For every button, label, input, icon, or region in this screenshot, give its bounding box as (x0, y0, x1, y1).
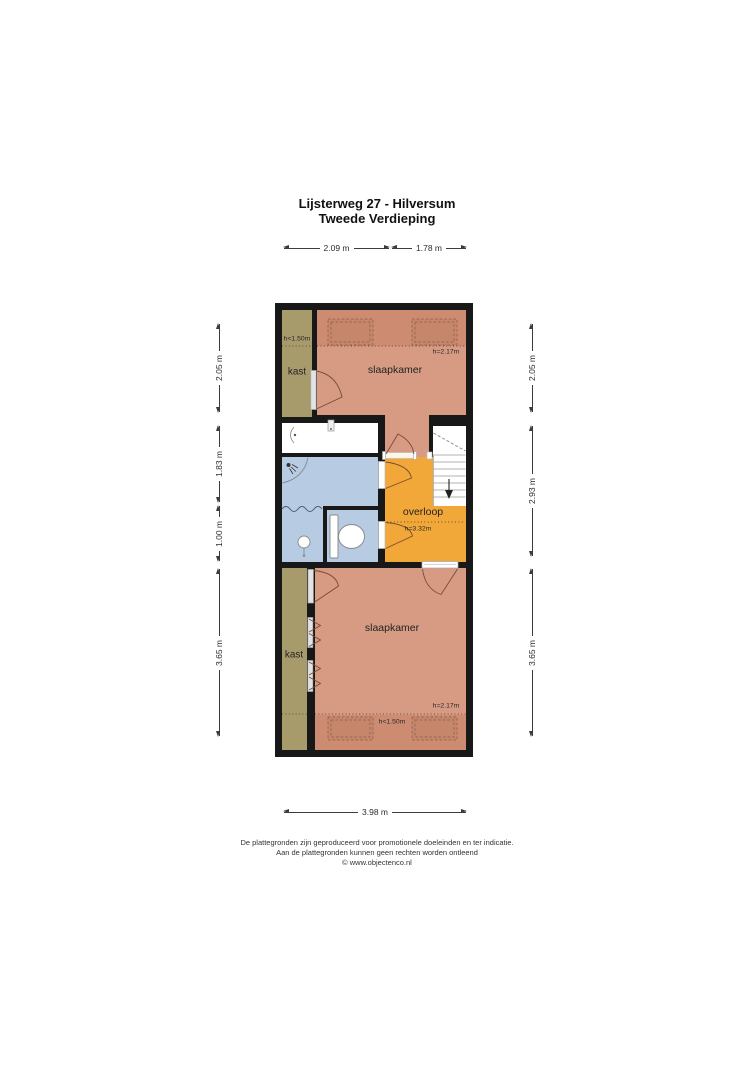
dimension-label: 2.05 m (214, 351, 224, 385)
arrow-up-icon (529, 323, 533, 329)
arrow-right-icon (384, 245, 390, 249)
room-label-slaapkamer-bottom: slaapkamer (365, 622, 419, 634)
page-title: Lijsterweg 27 - Hilversum (0, 196, 754, 211)
arrow-left-icon (283, 809, 289, 813)
height-note-slaapkamer-bottom: h=2.17m (433, 703, 460, 710)
dimension-label: 1.00 m (214, 517, 224, 551)
footer-line-1: De plattegronden zijn geproduceerd voor … (0, 838, 754, 848)
arrow-up-icon (216, 425, 220, 431)
height-note-slaapkamer-bottom-low: h<1.50m (379, 719, 406, 726)
dimension-left-4: 3.65 m (211, 568, 227, 737)
floorplan-page: Lijsterweg 27 - Hilversum Tweede Verdiep… (0, 0, 754, 1067)
arrow-up-icon (216, 568, 220, 574)
dimension-label: 2.93 m (527, 474, 537, 508)
room-bathroom-right (323, 457, 378, 506)
dimension-top-2: 1.78 m (391, 240, 467, 256)
room-label-slaapkamer-top: slaapkamer (368, 364, 422, 376)
room-storage-white (282, 423, 378, 453)
room-label-overloop: overloop (403, 506, 443, 518)
footer-disclaimer: De plattegronden zijn geproduceerd voor … (0, 838, 754, 868)
dimension-left-3: 1.00 m (211, 505, 227, 562)
floorplan: h<1.50m kast slaapkamer h=2.17m overloop… (275, 303, 473, 757)
page-subtitle: Tweede Verdieping (0, 211, 754, 226)
dimension-label: 2.09 m (320, 243, 354, 253)
arrow-down-icon (216, 497, 220, 503)
slaapkamer-top-corridor (385, 415, 429, 457)
dimension-label: 3.65 m (527, 636, 537, 670)
dimension-left-2: 1.83 m (211, 425, 227, 503)
room-label-kast-top: kast (288, 367, 306, 378)
arrow-down-icon (529, 407, 533, 413)
dimension-right-2: 2.93 m (524, 425, 540, 557)
arrow-up-icon (529, 425, 533, 431)
dimension-left-1: 2.05 m (211, 323, 227, 413)
arrow-right-icon (461, 245, 467, 249)
dimension-right-3: 3.65 m (524, 568, 540, 737)
room-toilet (327, 510, 378, 562)
dimension-label: 1.78 m (412, 243, 446, 253)
footer-line-2: Aan de plattegronden kunnen geen rechten… (0, 848, 754, 858)
arrow-down-icon (216, 407, 220, 413)
dimension-label: 3.65 m (214, 636, 224, 670)
room-label-kast-bottom: kast (285, 650, 303, 661)
dimension-label: 2.05 m (527, 351, 537, 385)
dimension-label: 3.98 m (358, 807, 392, 817)
dimension-top-1: 2.09 m (283, 240, 390, 256)
title-block: Lijsterweg 27 - Hilversum Tweede Verdiep… (0, 196, 754, 226)
arrow-right-icon (461, 809, 467, 813)
height-note-kast-top: h<1.50m (284, 336, 311, 343)
arrow-up-icon (529, 568, 533, 574)
room-kast-top (282, 310, 312, 417)
footer-line-3: © www.objectenco.nl (0, 858, 754, 868)
height-note-slaapkamer-top: h=2.17m (433, 349, 460, 356)
arrow-down-icon (529, 731, 533, 737)
slaapkamer-top-low-ceiling-band (317, 310, 466, 346)
dimension-right-1: 2.05 m (524, 323, 540, 413)
arrow-left-icon (391, 245, 397, 249)
stairs-area (433, 426, 466, 506)
arrow-left-icon (283, 245, 289, 249)
arrow-up-icon (216, 505, 220, 511)
arrow-up-icon (216, 323, 220, 329)
dimension-bottom-1: 3.98 m (283, 804, 467, 820)
arrow-down-icon (216, 731, 220, 737)
height-note-overloop: h=3.32m (405, 526, 432, 533)
arrow-down-icon (529, 551, 533, 557)
room-bathroom-left (282, 457, 323, 562)
arrow-down-icon (216, 556, 220, 562)
dimension-label: 1.83 m (214, 447, 224, 481)
